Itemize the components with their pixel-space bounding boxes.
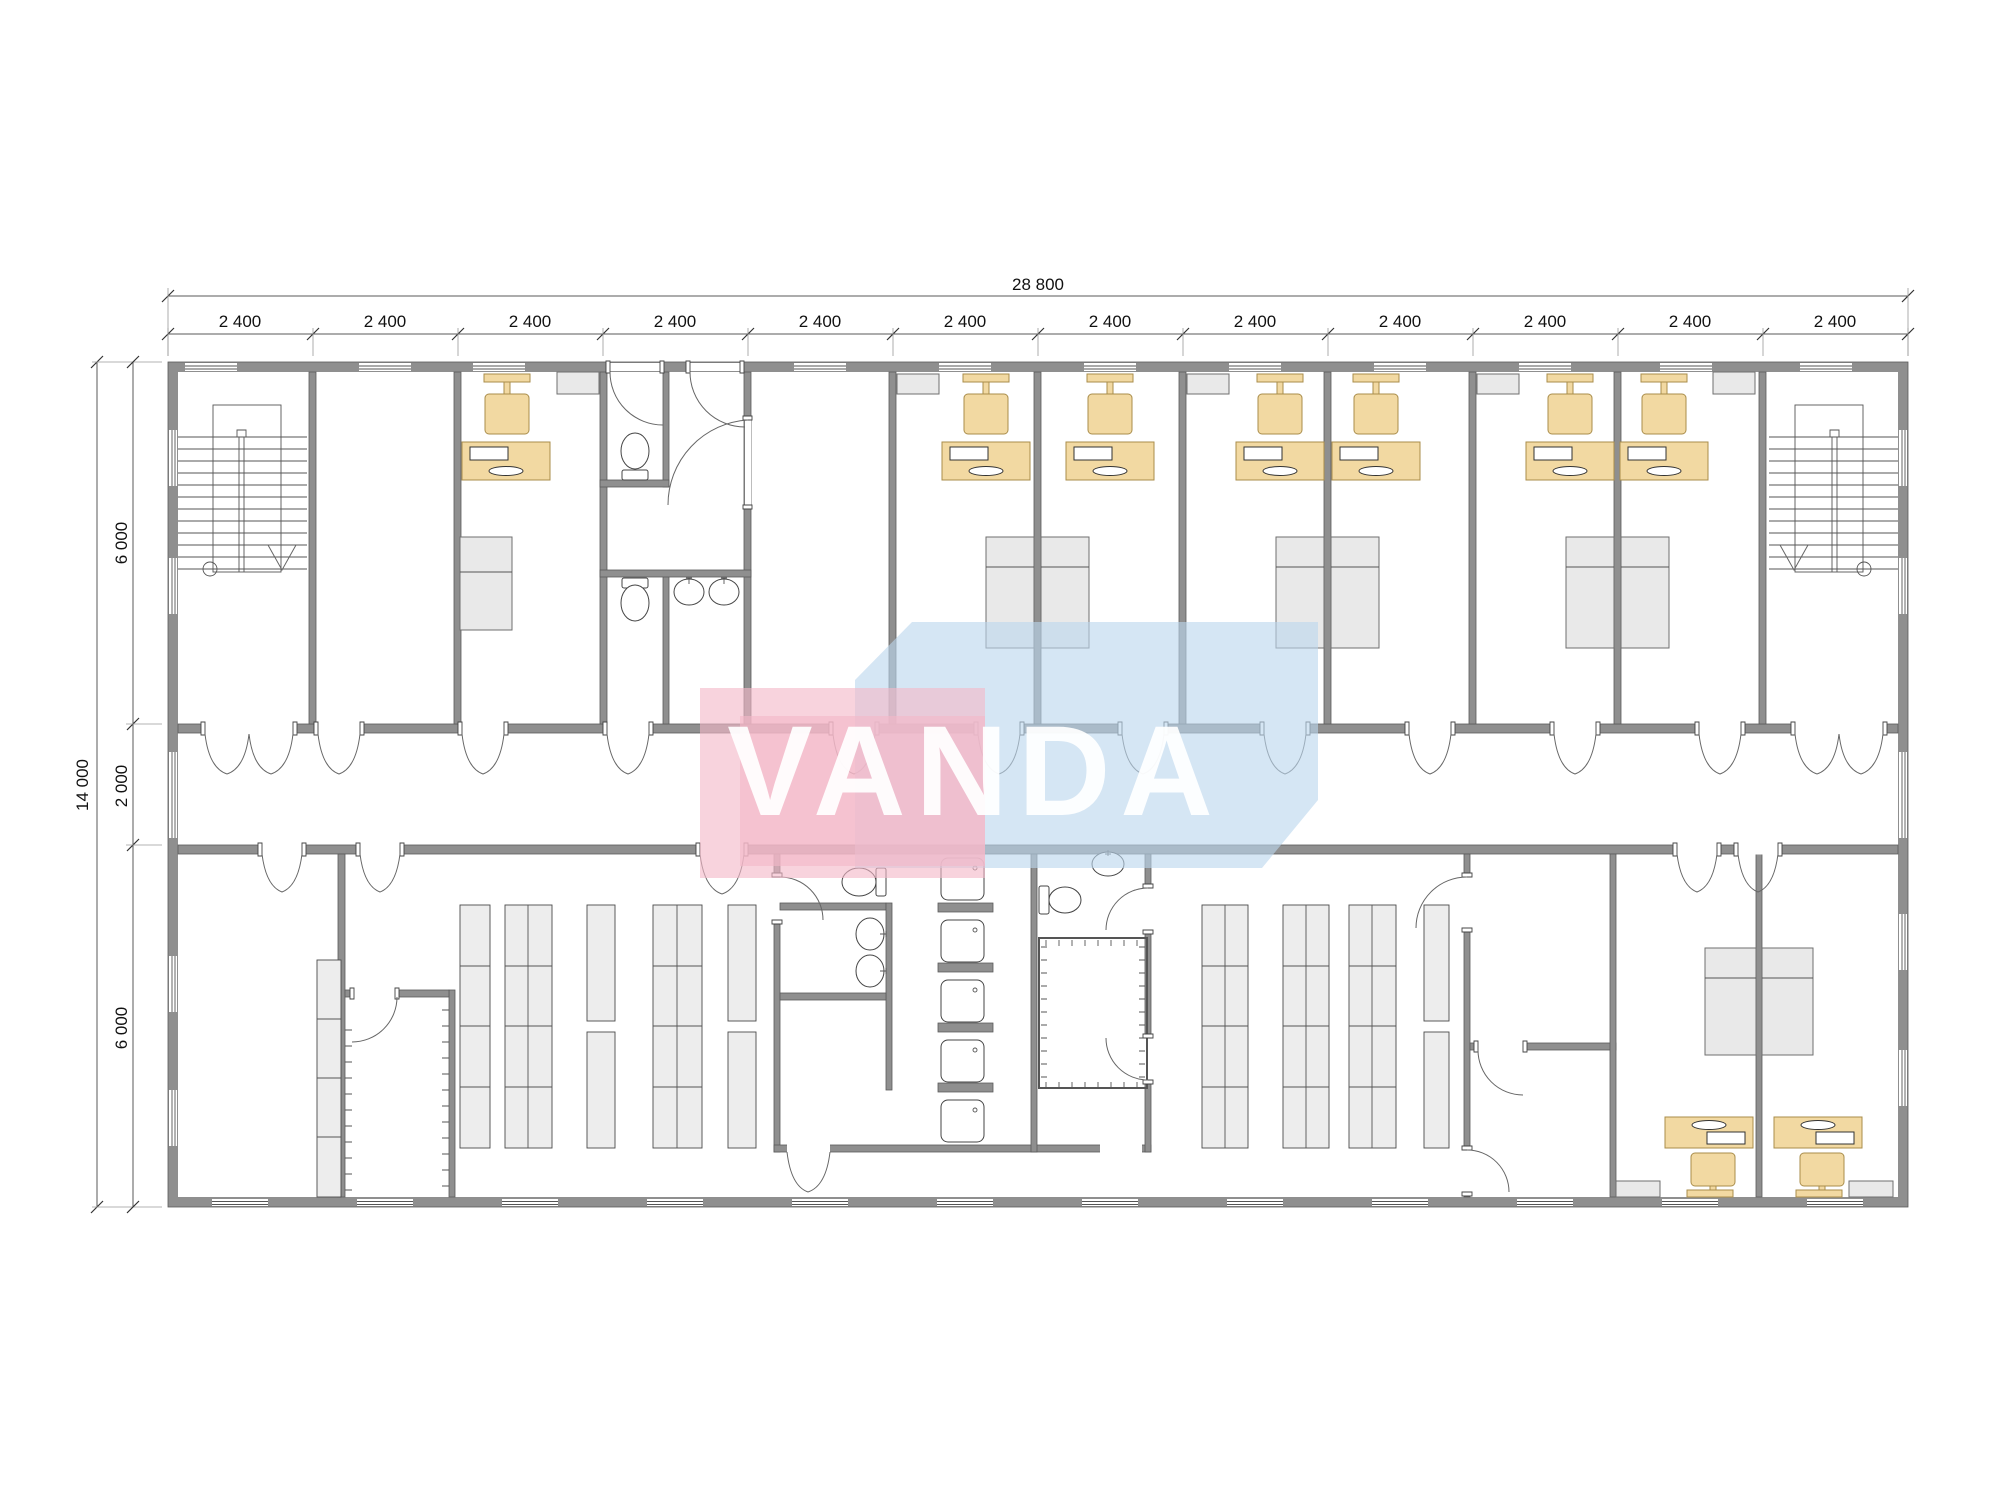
- wardrobe: [460, 537, 512, 630]
- floor-plan-drawing: 28 800 2 400 2 400 2 400 2 400 2 400 2 4…: [0, 0, 2000, 1500]
- cabinet: [1477, 374, 1519, 394]
- toilet-icon: [621, 433, 649, 480]
- chair: [1800, 1153, 1844, 1186]
- chair: [1691, 1153, 1735, 1186]
- toilet-icon: [1039, 886, 1081, 914]
- dim-top-segment-10: 2 400: [1669, 312, 1712, 331]
- chair: [485, 394, 529, 434]
- dim-top-segment-11: 2 400: [1814, 312, 1857, 331]
- chair: [964, 394, 1008, 434]
- dim-left-segment-0: 6 000: [112, 522, 131, 565]
- dim-top-segment-1: 2 400: [364, 312, 407, 331]
- dim-top-segment-6: 2 400: [1089, 312, 1132, 331]
- cabinet: [897, 374, 939, 394]
- dim-left-total: 14 000: [73, 759, 92, 811]
- floor-mat: [1849, 1181, 1893, 1197]
- dim-top-segment-7: 2 400: [1234, 312, 1277, 331]
- monitor-stand: [504, 382, 510, 394]
- dim-left-segment-1: 2 000: [112, 765, 131, 808]
- shelving-rack: [317, 960, 341, 1197]
- dim-top-segment-5: 2 400: [944, 312, 987, 331]
- chair: [1088, 394, 1132, 434]
- keyboard-icon: [489, 467, 523, 476]
- monitor-icon: [1796, 1190, 1842, 1197]
- dim-top-segment-4: 2 400: [799, 312, 842, 331]
- chair: [1548, 394, 1592, 434]
- cabinet: [1713, 372, 1755, 394]
- dim-top-segment-8: 2 400: [1379, 312, 1422, 331]
- monitor-icon: [1687, 1190, 1733, 1197]
- dim-left-segment-2: 6 000: [112, 1007, 131, 1050]
- dim-top-segment-2: 2 400: [509, 312, 552, 331]
- dim-top-segment-3: 2 400: [654, 312, 697, 331]
- monitor-icon: [484, 374, 530, 382]
- dim-top-total: 28 800: [1012, 275, 1064, 294]
- computer-icon: [470, 447, 508, 460]
- floor-mat: [1616, 1181, 1660, 1197]
- dimension-top: 28 800 2 400 2 400 2 400 2 400 2 400 2 4…: [162, 275, 1914, 356]
- cabinet: [557, 372, 599, 394]
- dimension-left: 14 000 6 000 2 000 6 000: [73, 356, 162, 1213]
- dim-top-segment-9: 2 400: [1524, 312, 1567, 331]
- toilet-icon: [621, 578, 649, 621]
- watermark-text: VANDA: [727, 700, 1223, 843]
- dim-top-segment-0: 2 400: [219, 312, 262, 331]
- floor-plan-page: 28 800 2 400 2 400 2 400 2 400 2 400 2 4…: [0, 0, 2000, 1500]
- cabinet: [1187, 374, 1229, 394]
- chair: [1258, 394, 1302, 434]
- chair: [1642, 394, 1686, 434]
- chair: [1354, 394, 1398, 434]
